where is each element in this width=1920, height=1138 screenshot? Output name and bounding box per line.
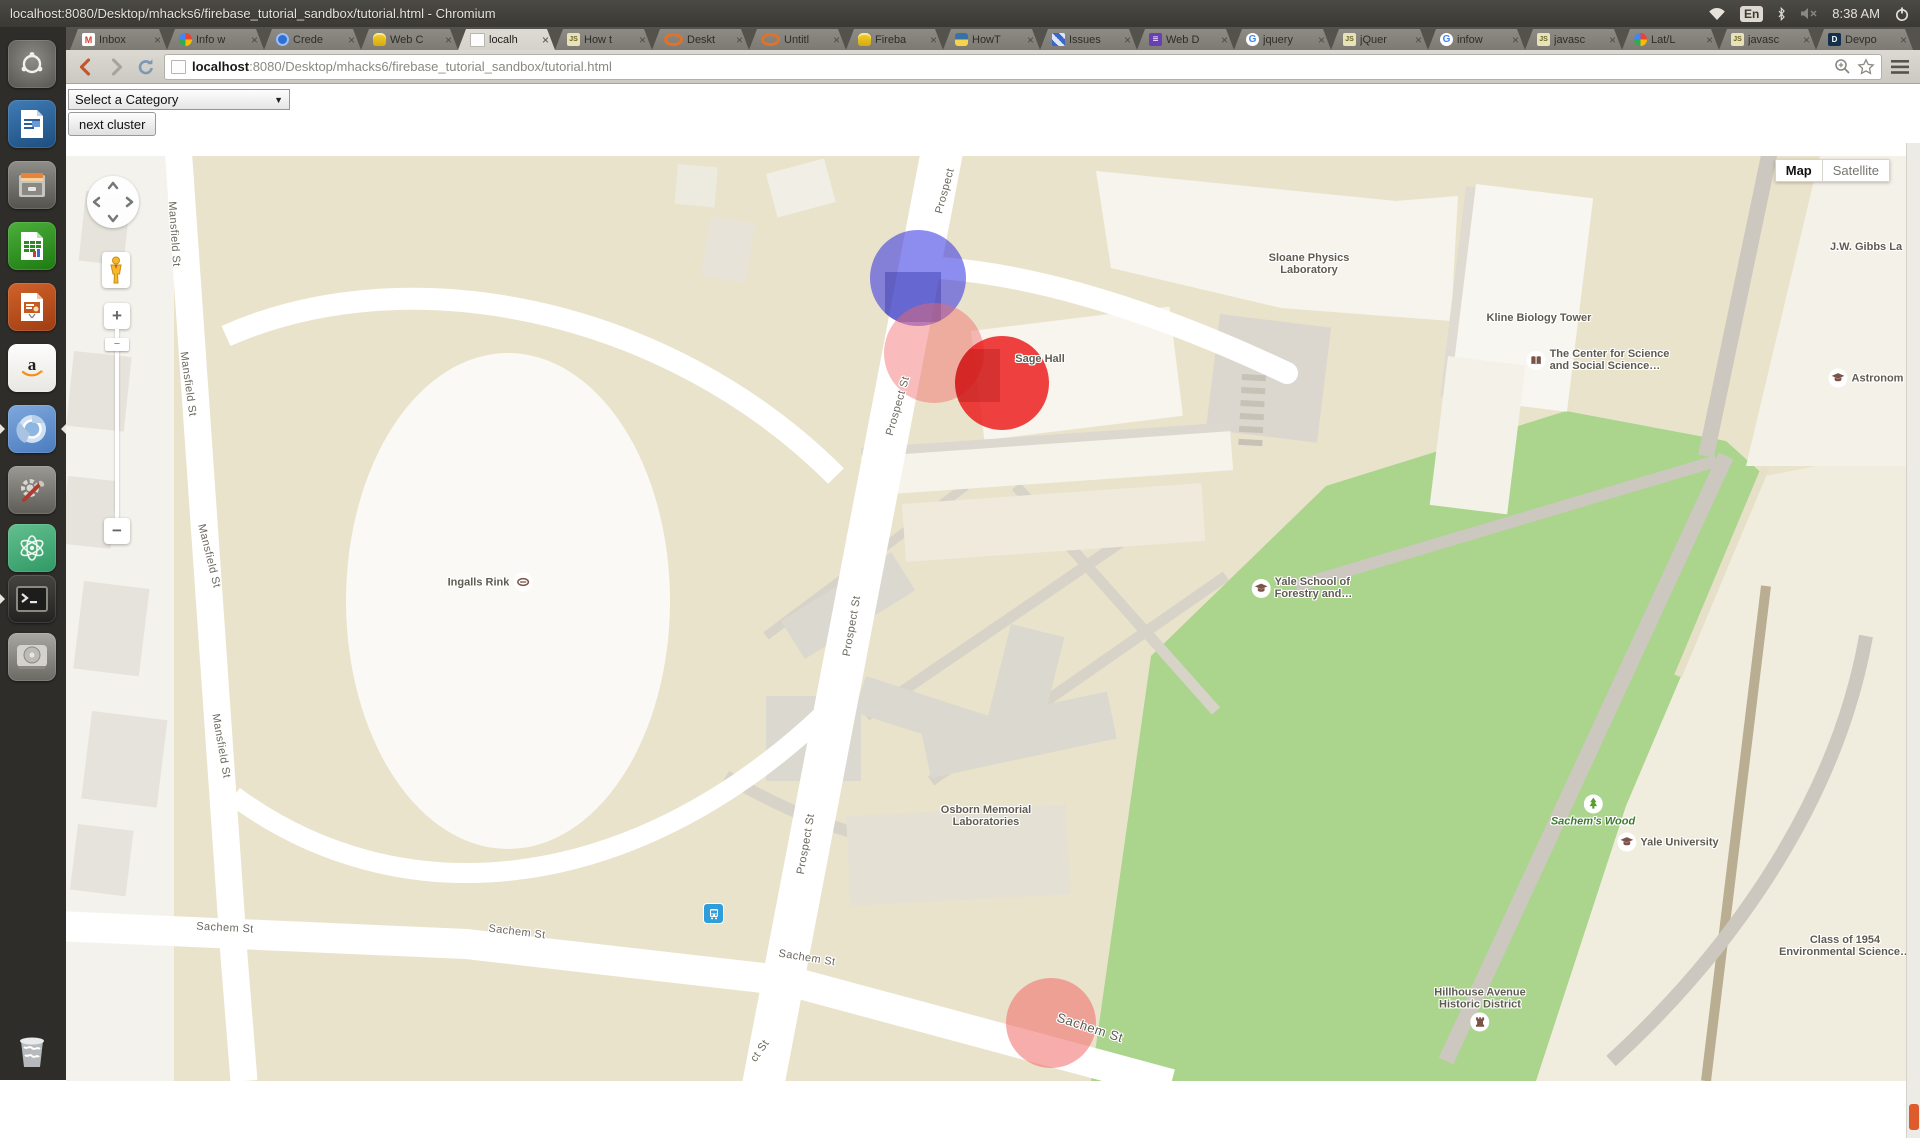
category-select[interactable]: Select a Category ▼ <box>68 89 290 110</box>
street-view-pegman[interactable] <box>102 252 130 288</box>
tab-close-icon[interactable]: × <box>348 35 355 45</box>
tab-close-icon[interactable]: × <box>1027 35 1034 45</box>
transit-stop-icon[interactable] <box>703 903 724 924</box>
launcher-hard-disk-icon[interactable] <box>8 633 56 681</box>
back-button[interactable] <box>74 55 98 79</box>
url-path: :8080/Desktop/mhacks6/firebase_tutorial_… <box>249 59 612 74</box>
tab-close-icon[interactable]: × <box>1706 35 1713 45</box>
map-canvas[interactable]: Mansfield StMansfield StMansfield StMans… <box>66 156 1920 1081</box>
google-g-favicon: G <box>1440 33 1453 46</box>
pixel-favicon <box>1052 33 1065 46</box>
launcher-amazon-icon[interactable]: a <box>8 344 56 392</box>
running-indicator <box>0 424 5 434</box>
js-favicon: JS <box>1343 33 1356 46</box>
network-wifi-icon[interactable] <box>1708 7 1726 20</box>
js-favicon: JS <box>1731 33 1744 46</box>
cluster-red[interactable] <box>955 336 1049 430</box>
map-tiles <box>66 156 1920 1081</box>
devpost-favicon: D <box>1828 33 1841 46</box>
page-icon <box>171 60 186 74</box>
tab-close-icon[interactable]: × <box>1512 35 1519 45</box>
tab-how-t[interactable]: JSHow t× <box>555 29 652 50</box>
url-host: localhost <box>192 59 249 74</box>
zoom-out-button[interactable]: − <box>104 518 130 544</box>
tab-javasc[interactable]: JSjavasc× <box>1719 29 1816 50</box>
category-select-value: Select a Category <box>75 92 178 107</box>
browser-window: MInbox×Info w×Crede×Web C×localh×JSHow t… <box>66 27 1920 1080</box>
session-power-icon[interactable] <box>1894 6 1910 22</box>
tab-crede[interactable]: Crede× <box>264 29 361 50</box>
system-tray: En 8:38 AM <box>1708 6 1910 22</box>
tab-devpo[interactable]: DDevpo× <box>1816 29 1913 50</box>
cluster-pink-bottom[interactable] <box>1006 978 1096 1068</box>
tab-close-icon[interactable]: × <box>445 35 452 45</box>
orange-circle-favicon <box>761 33 780 46</box>
launcher-chromium-browser-icon[interactable] <box>8 405 56 453</box>
bluetooth-icon[interactable] <box>1777 7 1786 21</box>
tab-close-icon[interactable]: × <box>736 35 743 45</box>
tab-web-c[interactable]: Web C× <box>361 29 458 50</box>
launcher-file-archive-icon[interactable] <box>8 161 56 209</box>
launcher-dash-home-icon[interactable] <box>8 40 56 88</box>
tab-jquery[interactable]: Gjquery× <box>1234 29 1331 50</box>
scrollbar-thumb[interactable] <box>1909 1104 1919 1130</box>
tab-close-icon[interactable]: × <box>930 35 937 45</box>
tab-issues[interactable]: Issues× <box>1040 29 1137 50</box>
running-indicator <box>0 594 5 604</box>
unity-launcher: a <box>0 27 66 1080</box>
tab-lat-l[interactable]: Lat/L× <box>1622 29 1719 50</box>
tab-close-icon[interactable]: × <box>251 35 258 45</box>
focused-indicator <box>61 424 66 434</box>
tab-close-icon[interactable]: × <box>833 35 840 45</box>
launcher-trash-icon[interactable] <box>8 1027 56 1075</box>
chevron-down-icon: ▼ <box>274 95 283 105</box>
python-favicon <box>955 33 968 46</box>
page-favicon <box>470 33 485 47</box>
tab-info-w[interactable]: Info w× <box>167 29 264 50</box>
desktop-top-panel: localhost:8080/Desktop/mhacks6/firebase_… <box>0 0 1920 27</box>
launcher-libreoffice-writer-icon[interactable] <box>8 100 56 148</box>
tab-web-d[interactable]: ≡Web D× <box>1137 29 1234 50</box>
window-title: localhost:8080/Desktop/mhacks6/firebase_… <box>10 6 496 21</box>
map-type-control: Map Satellite <box>1775 159 1890 182</box>
tab-inbox[interactable]: MInbox× <box>70 29 167 50</box>
purple-list-favicon: ≡ <box>1149 33 1162 46</box>
tab-close-icon[interactable]: × <box>542 35 549 45</box>
launcher-libreoffice-impress-icon[interactable] <box>8 283 56 331</box>
map-pan-control[interactable] <box>87 176 139 228</box>
map-type-satellite-button[interactable]: Satellite <box>1823 159 1890 182</box>
google-colors-favicon <box>179 33 192 46</box>
zoom-slider-track[interactable] <box>115 329 119 518</box>
tab-close-icon[interactable]: × <box>639 35 646 45</box>
tab-strip: MInbox×Info w×Crede×Web C×localh×JSHow t… <box>66 27 1920 50</box>
menu-icon[interactable] <box>1888 55 1912 79</box>
google-g-favicon: G <box>1246 33 1259 46</box>
launcher-terminal-icon[interactable] <box>8 575 56 623</box>
clock[interactable]: 8:38 AM <box>1832 6 1880 21</box>
tab-close-icon[interactable]: × <box>1609 35 1616 45</box>
zoom-page-icon[interactable] <box>1834 58 1851 75</box>
tab-fireba[interactable]: Fireba× <box>846 29 943 50</box>
tab-close-icon[interactable]: × <box>1318 35 1325 45</box>
page-scrollbar[interactable] <box>1906 143 1920 1138</box>
keyboard-layout-indicator[interactable]: En <box>1740 6 1763 22</box>
blue-badge-favicon <box>276 33 289 46</box>
tab-howt[interactable]: HowT× <box>943 29 1040 50</box>
tab-javasc[interactable]: JSjavasc× <box>1525 29 1622 50</box>
tab-deskt[interactable]: Deskt× <box>652 29 749 50</box>
zoom-in-button[interactable]: + <box>104 303 130 329</box>
launcher-system-settings-icon[interactable] <box>8 466 56 514</box>
reload-button[interactable] <box>134 55 158 79</box>
page-content: Select a Category ▼ next cluster <box>66 85 1920 1080</box>
tab-close-icon[interactable]: × <box>1900 35 1907 45</box>
cluster-red-overlap-shade <box>955 349 1000 402</box>
js-favicon: JS <box>567 33 580 46</box>
svg-text:a: a <box>28 355 37 374</box>
database-favicon <box>373 33 386 46</box>
launcher-atom-editor-icon[interactable] <box>8 524 56 572</box>
browser-toolbar: localhost:8080/Desktop/mhacks6/firebase_… <box>66 50 1920 84</box>
orange-circle-favicon <box>664 33 683 46</box>
gmail-favicon: M <box>82 33 95 46</box>
google-colors-favicon <box>1634 33 1647 46</box>
tab-localh[interactable]: localh× <box>458 29 555 50</box>
database-favicon <box>858 33 871 46</box>
js-favicon: JS <box>1537 33 1550 46</box>
next-cluster-button[interactable]: next cluster <box>68 112 156 136</box>
volume-muted-icon[interactable] <box>1800 7 1818 20</box>
tab-close-icon[interactable]: × <box>1124 35 1131 45</box>
url-field[interactable]: localhost:8080/Desktop/mhacks6/firebase_… <box>164 54 1882 80</box>
forward-button[interactable] <box>104 55 128 79</box>
tab-close-icon[interactable]: × <box>1221 35 1228 45</box>
map-type-map-button[interactable]: Map <box>1775 159 1823 182</box>
tab-close-icon[interactable]: × <box>1415 35 1422 45</box>
tab-infow[interactable]: Ginfow× <box>1428 29 1525 50</box>
tab-jquer[interactable]: JSjQuer× <box>1331 29 1428 50</box>
tab-untitl[interactable]: Untitl× <box>749 29 846 50</box>
bookmark-star-icon[interactable] <box>1857 58 1875 76</box>
launcher-libreoffice-calc-icon[interactable] <box>8 222 56 270</box>
zoom-slider-handle[interactable]: − <box>105 338 129 351</box>
tab-close-icon[interactable]: × <box>1803 35 1810 45</box>
tab-close-icon[interactable]: × <box>154 35 161 45</box>
